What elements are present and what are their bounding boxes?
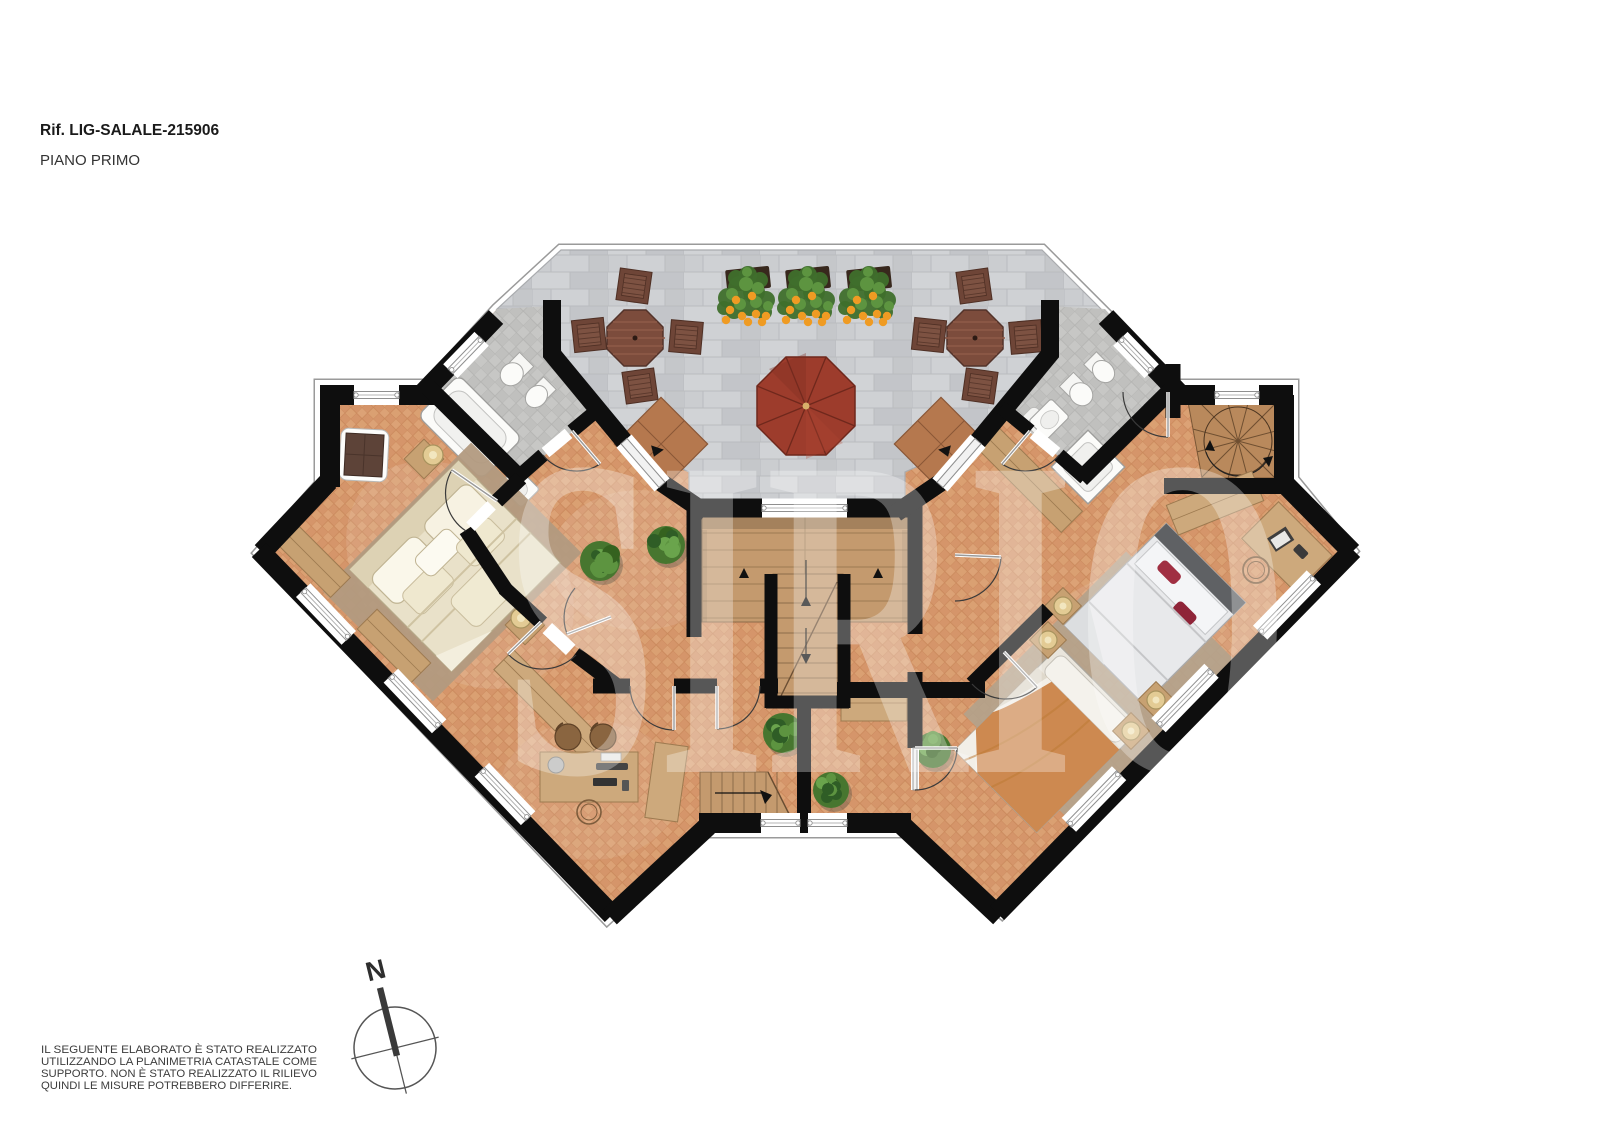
svg-text:PIANO PRIMO: PIANO PRIMO [40,152,140,169]
svg-text:SIRIO: SIRIO [503,363,1291,873]
svg-text:N: N [363,953,389,987]
svg-text:Rif. LIG-SALALE-215906: Rif. LIG-SALALE-215906 [40,122,220,139]
svg-text:IL SEGUENTE ELABORATO È ST: IL SEGUENTE ELABORATO È STATO REALIZZATO [41,1043,317,1056]
svg-text:UTILIZZANDO LA PLANIMETRIA: UTILIZZANDO LA PLANIMETRIA CATASTALE COM… [41,1056,317,1068]
svg-text:QUINDI LE MISURE POTREBBERO DI: QUINDI LE MISURE POTREBBERO DIFFERIRE. [41,1080,292,1092]
svg-text:SUPPORTO. NON È STATO REALIZZA: SUPPORTO. NON È STATO REALIZZATO IL RILI… [41,1067,317,1080]
